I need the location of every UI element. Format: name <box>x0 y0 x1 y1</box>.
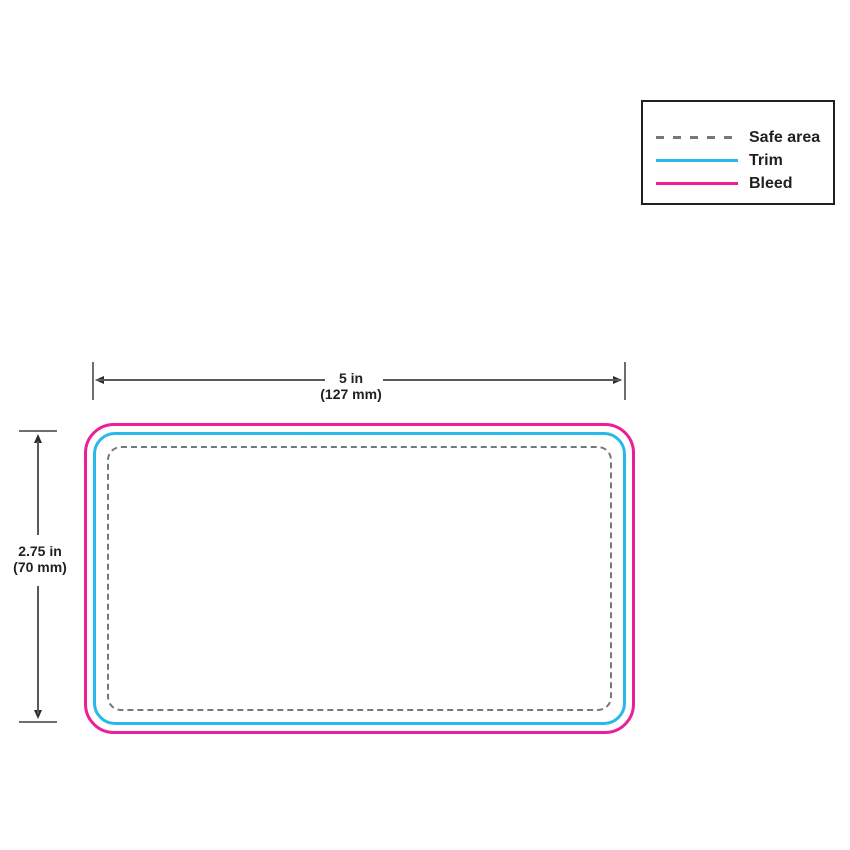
bleed-line-swatch <box>656 182 738 185</box>
legend-item-trim: Trim <box>656 151 833 170</box>
width-dimension-right-tick <box>624 362 626 400</box>
legend-label-safe-area: Safe area <box>749 128 820 147</box>
width-value: 5 in <box>300 370 402 386</box>
width-dimension-left-tick <box>92 362 94 400</box>
legend-item-safe-area: Safe area <box>656 128 833 147</box>
height-dimension-line-bottom-segment <box>37 586 39 714</box>
width-dimension-line-left-segment <box>97 379 325 381</box>
height-dimension-bottom-tick <box>19 721 57 723</box>
legend: Safe area Trim Bleed <box>641 100 835 205</box>
height-value: 2.75 in <box>0 543 80 559</box>
height-dimension-label: 2.75 in (70 mm) <box>0 543 80 575</box>
legend-label-bleed: Bleed <box>749 174 793 193</box>
legend-item-bleed: Bleed <box>656 174 833 193</box>
width-dimension-label: 5 in (127 mm) <box>300 370 402 402</box>
trim-line-swatch <box>656 159 738 162</box>
height-dimension-line-top-segment <box>37 441 39 535</box>
legend-label-trim: Trim <box>749 151 783 170</box>
height-metric-value: (70 mm) <box>0 559 80 575</box>
safe-area-outline <box>107 446 612 711</box>
width-metric-value: (127 mm) <box>300 386 402 402</box>
print-template-diagram: Safe area Trim Bleed 5 in (127 mm) 2 <box>0 0 850 850</box>
height-dimension-top-tick <box>19 430 57 432</box>
safe-area-dashed-line-swatch <box>656 136 738 139</box>
width-dimension-line-right-segment <box>383 379 621 381</box>
